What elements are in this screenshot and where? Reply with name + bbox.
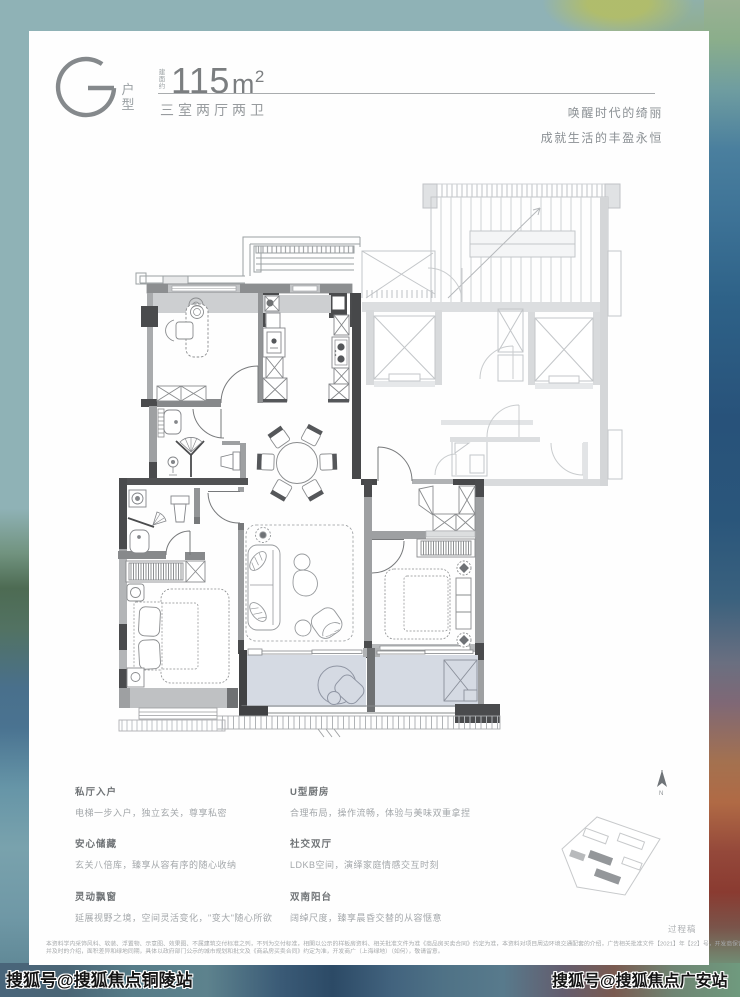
svg-text:N: N	[659, 791, 663, 797]
